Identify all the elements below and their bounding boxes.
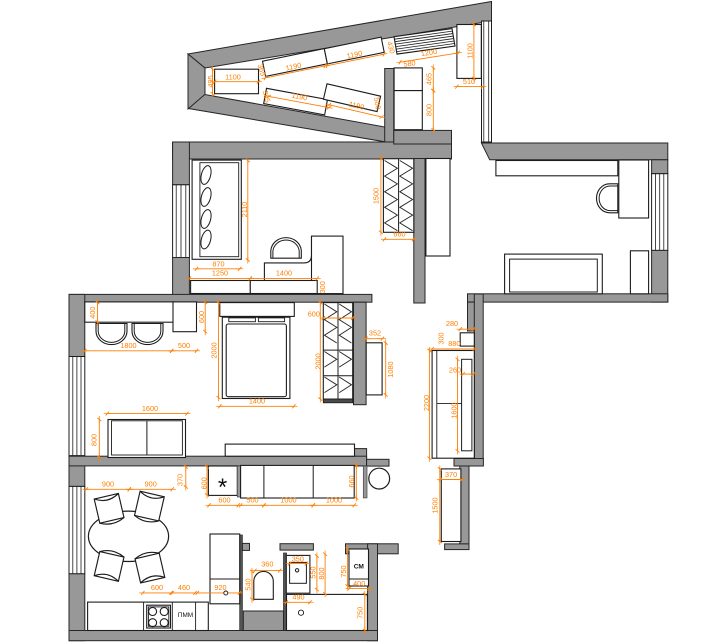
svg-text:400: 400 <box>88 307 97 319</box>
svg-text:1600: 1600 <box>449 402 458 418</box>
svg-text:600: 600 <box>197 311 206 323</box>
svg-text:660: 660 <box>393 230 405 239</box>
svg-text:1080: 1080 <box>386 361 395 377</box>
svg-text:500: 500 <box>246 495 258 504</box>
svg-text:1500: 1500 <box>431 497 440 513</box>
svg-text:300: 300 <box>437 332 446 344</box>
svg-text:920: 920 <box>214 583 226 592</box>
svg-text:490: 490 <box>292 593 304 602</box>
svg-text:1500: 1500 <box>372 188 381 204</box>
svg-text:900: 900 <box>145 479 157 488</box>
svg-text:370: 370 <box>175 474 184 486</box>
svg-text:280: 280 <box>446 319 458 328</box>
svg-text:1400: 1400 <box>276 269 292 278</box>
svg-text:2000: 2000 <box>209 342 218 358</box>
svg-text:300: 300 <box>318 281 327 293</box>
svg-text:352: 352 <box>369 329 381 338</box>
svg-text:1000: 1000 <box>280 495 296 504</box>
svg-text:460: 460 <box>178 583 190 592</box>
svg-text:260: 260 <box>449 365 461 374</box>
svg-text:1400: 1400 <box>249 396 265 405</box>
svg-text:360: 360 <box>261 560 273 569</box>
svg-text:800: 800 <box>89 434 98 446</box>
svg-text:870: 870 <box>212 259 224 268</box>
svg-text:ПММ: ПММ <box>178 612 193 619</box>
svg-text:600: 600 <box>218 495 230 504</box>
svg-text:1600: 1600 <box>142 404 158 413</box>
svg-text:2000: 2000 <box>314 353 323 369</box>
svg-text:800: 800 <box>424 104 433 116</box>
svg-text:465: 465 <box>424 73 433 85</box>
svg-text:350: 350 <box>292 555 304 564</box>
svg-text:1800: 1800 <box>120 341 136 350</box>
svg-text:540: 540 <box>244 578 253 590</box>
svg-text:500: 500 <box>178 341 190 350</box>
svg-text:495: 495 <box>206 75 215 87</box>
svg-text:1250: 1250 <box>212 269 228 278</box>
svg-text:750: 750 <box>339 565 348 577</box>
svg-text:2110: 2110 <box>240 202 249 218</box>
svg-text:900: 900 <box>102 479 114 488</box>
svg-text:370: 370 <box>445 470 457 479</box>
svg-text:1000: 1000 <box>326 495 342 504</box>
svg-text:1100: 1100 <box>466 43 475 59</box>
svg-text:750: 750 <box>355 607 364 619</box>
svg-text:660: 660 <box>347 475 356 487</box>
svg-text:510: 510 <box>463 77 475 86</box>
svg-text:600: 600 <box>200 477 209 489</box>
svg-text:1100: 1100 <box>225 73 241 82</box>
svg-text:800: 800 <box>317 567 326 579</box>
svg-text:880: 880 <box>448 339 460 348</box>
svg-text:СМ: СМ <box>354 564 365 571</box>
svg-text:600: 600 <box>308 309 320 318</box>
svg-text:400: 400 <box>353 579 365 588</box>
svg-text:600: 600 <box>151 583 163 592</box>
svg-text:580: 580 <box>403 58 416 68</box>
svg-text:2200: 2200 <box>422 395 431 411</box>
